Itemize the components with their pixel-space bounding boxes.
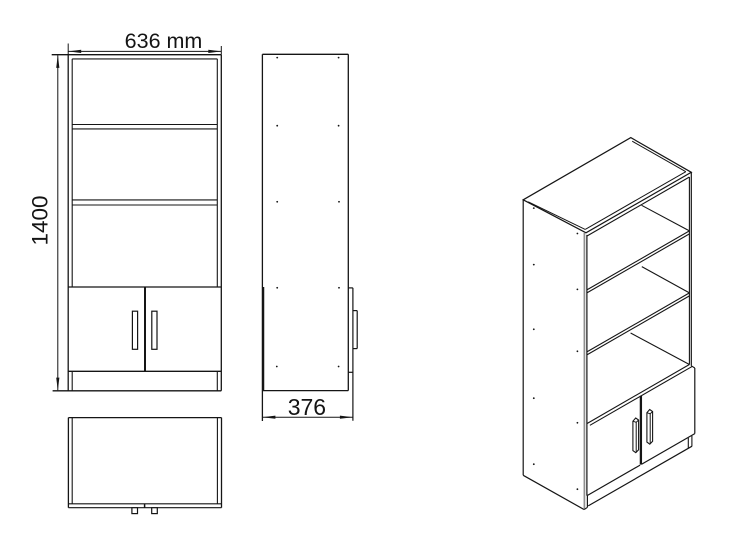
svg-text:636 mm: 636 mm	[125, 29, 203, 53]
svg-text:1400: 1400	[28, 195, 53, 245]
svg-text:376: 376	[288, 394, 326, 420]
